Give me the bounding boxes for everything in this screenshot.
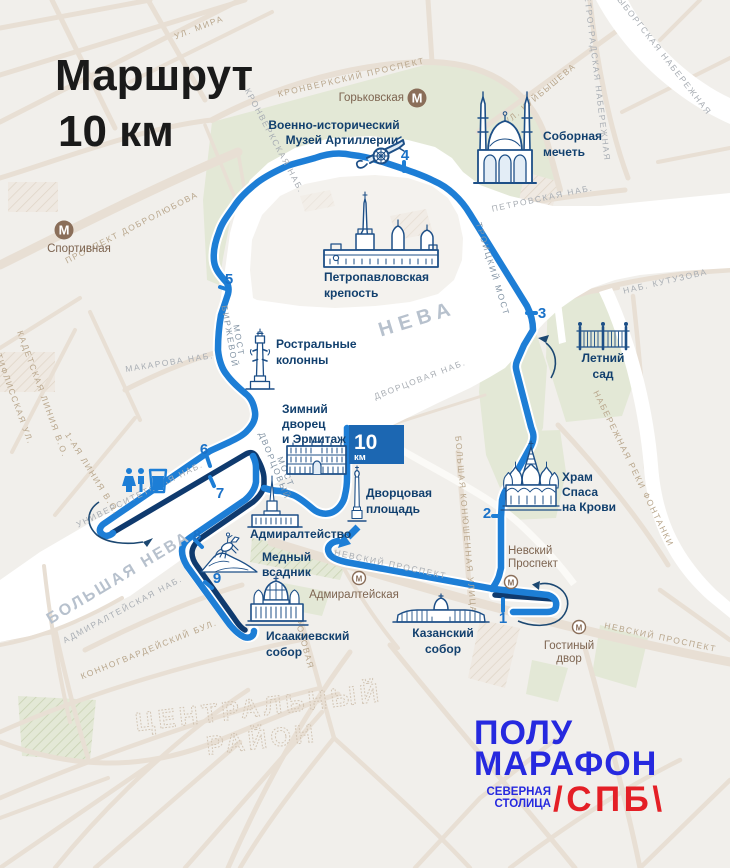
svg-text:СТОЛИЦА: СТОЛИЦА: [495, 798, 551, 810]
svg-text:Военно-исторический: Военно-исторический: [268, 118, 399, 132]
svg-text:Дворцовая: Дворцовая: [366, 486, 432, 500]
svg-text:колонны: колонны: [276, 353, 328, 367]
svg-text:Летний: Летний: [582, 351, 625, 365]
svg-text:2: 2: [483, 505, 491, 522]
svg-text:/СПБ\: /СПБ\: [553, 780, 666, 819]
svg-text:10 км: 10 км: [58, 107, 174, 156]
svg-text:7: 7: [216, 485, 224, 502]
svg-text:Храм: Храм: [562, 470, 593, 484]
svg-text:Исаакиевский: Исаакиевский: [266, 629, 349, 643]
svg-text:собор: собор: [266, 645, 302, 659]
svg-text:5: 5: [225, 271, 233, 288]
svg-text:площадь: площадь: [366, 502, 420, 516]
svg-text:и Эрмитаж: и Эрмитаж: [282, 432, 346, 446]
svg-text:сад: сад: [592, 367, 613, 381]
svg-text:6: 6: [200, 441, 208, 458]
svg-text:М: М: [59, 223, 70, 238]
svg-text:М: М: [508, 579, 515, 588]
svg-text:Гостиный: Гостиный: [544, 640, 594, 652]
svg-text:М: М: [412, 91, 423, 106]
svg-text:крепость: крепость: [324, 286, 378, 300]
svg-text:Маршрут: Маршрут: [55, 51, 253, 100]
svg-text:Спортивная: Спортивная: [47, 243, 111, 255]
svg-text:Соборная: Соборная: [543, 129, 602, 143]
svg-text:Адмиралтейство: Адмиралтейство: [250, 527, 351, 541]
svg-text:СЕВЕРНАЯ: СЕВЕРНАЯ: [487, 786, 552, 798]
svg-text:Проспект: Проспект: [508, 558, 559, 570]
svg-text:двор: двор: [556, 653, 581, 665]
svg-text:Медный: Медный: [262, 550, 311, 564]
svg-text:всадник: всадник: [262, 565, 312, 579]
svg-text:Адмиралтейская: Адмиралтейская: [309, 589, 399, 601]
svg-text:8: 8: [193, 527, 201, 544]
svg-text:1: 1: [499, 610, 507, 627]
svg-text:М: М: [356, 575, 363, 584]
svg-text:Спаса: Спаса: [562, 485, 598, 499]
svg-text:10: 10: [354, 431, 377, 454]
svg-text:собор: собор: [425, 642, 461, 656]
svg-text:на Крови: на Крови: [562, 500, 616, 514]
svg-text:МАРАФОН: МАРАФОН: [474, 745, 657, 783]
svg-text:Музей Артиллерии: Музей Артиллерии: [286, 133, 399, 147]
svg-text:Горьковская: Горьковская: [339, 92, 404, 104]
svg-text:км: км: [354, 452, 366, 463]
svg-text:3: 3: [538, 305, 546, 322]
svg-text:Невский: Невский: [508, 545, 552, 557]
svg-text:Казанский: Казанский: [412, 626, 473, 640]
svg-text:М: М: [576, 624, 583, 633]
svg-text:Ростральные: Ростральные: [276, 337, 357, 351]
svg-text:Зимний: Зимний: [282, 402, 328, 416]
svg-text:дворец: дворец: [282, 417, 326, 431]
svg-text:мечеть: мечеть: [543, 145, 585, 159]
svg-text:Петропавловская: Петропавловская: [324, 270, 429, 284]
